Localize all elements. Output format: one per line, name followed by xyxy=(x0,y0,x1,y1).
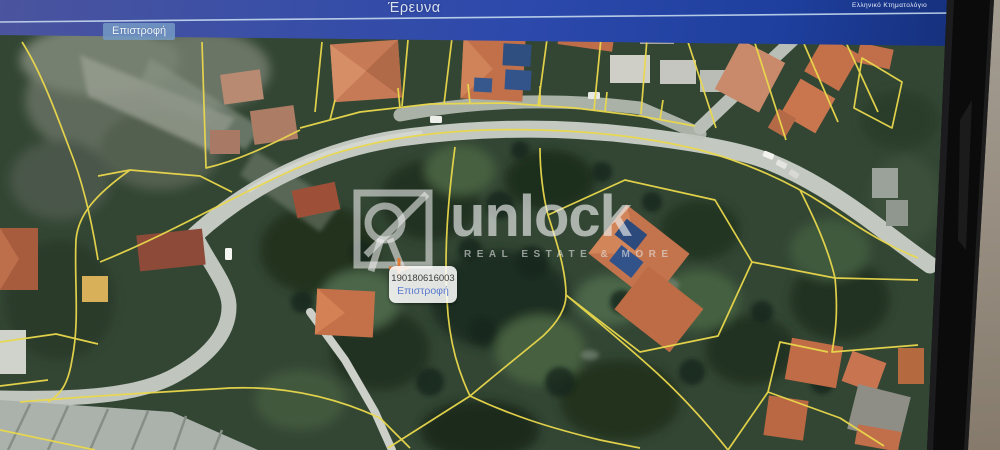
cadastre-brand-label: Ελληνικό Κτηματολόγιο xyxy=(852,2,927,9)
satellite-map[interactable] xyxy=(0,0,952,450)
photographed-monitor: unlock REAL ESTATE & MORE 190180616003 Ε… xyxy=(0,0,1000,450)
map-viewport[interactable]: unlock REAL ESTATE & MORE 190180616003 Ε… xyxy=(0,0,952,450)
parcel-popup: 190180616003 Επιστροφή xyxy=(389,266,457,303)
page-title: Έρευνα xyxy=(388,0,441,16)
back-button[interactable]: Επιστροφή xyxy=(103,23,175,40)
parcel-code: 190180616003 xyxy=(391,273,454,284)
popup-return-link[interactable]: Επιστροφή xyxy=(397,285,449,297)
